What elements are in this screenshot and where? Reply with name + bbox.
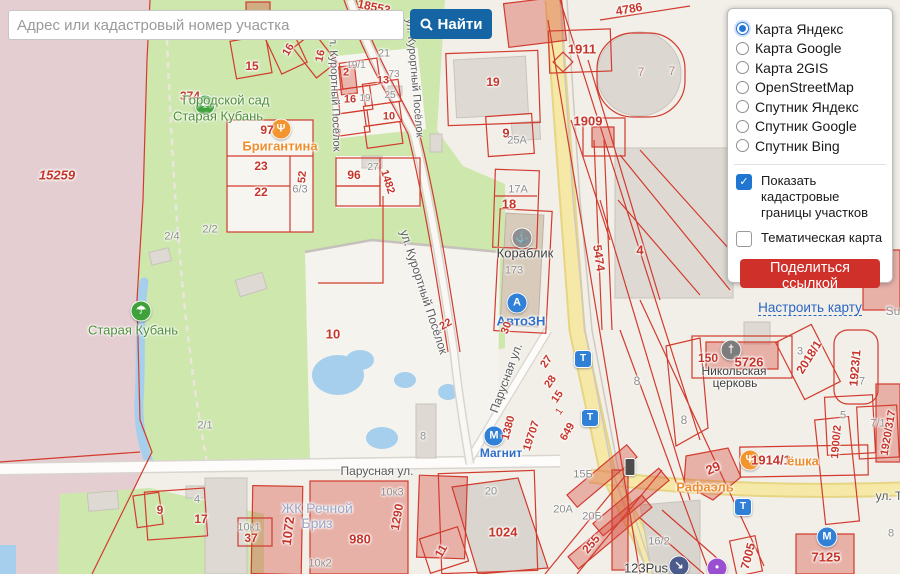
basemap-option-label: Спутник Bing <box>755 139 840 153</box>
basemap-option-4[interactable]: Спутник Яндекс <box>736 97 884 117</box>
overlay-option-0[interactable]: ✓Показать кадастровые границы участков <box>736 173 884 222</box>
search-input[interactable] <box>8 10 404 40</box>
basemap-option-label: Карта Google <box>755 41 842 55</box>
checkbox-icon <box>736 231 752 247</box>
basemap-option-label: Спутник Яндекс <box>755 100 859 114</box>
search-button-label: Найти <box>438 16 483 33</box>
basemap-option-label: Карта 2GIS <box>755 61 828 75</box>
configure-map-link[interactable]: Настроить карту <box>736 300 884 315</box>
radio-icon <box>736 139 749 152</box>
radio-icon <box>736 22 749 35</box>
traffic-light-icon[interactable] <box>625 458 636 476</box>
restaurant-icon[interactable]: Ψ <box>271 119 292 140</box>
overlay-option-1[interactable]: Тематическая карта <box>736 230 884 247</box>
layers-panel: Карта ЯндексКарта GoogleКарта 2GISOpenSt… <box>727 8 893 283</box>
tram-stop-icon[interactable]: Т <box>581 409 599 427</box>
panel-divider <box>734 164 886 165</box>
checkbox-icon: ✓ <box>736 174 752 190</box>
basemap-option-3[interactable]: OpenStreetMap <box>736 78 884 98</box>
radio-icon <box>736 81 749 94</box>
share-link-button[interactable]: Поделиться ссылкой <box>740 259 880 288</box>
radio-icon <box>736 100 749 113</box>
basemap-option-1[interactable]: Карта Google <box>736 39 884 59</box>
underpass-icon[interactable]: ↘ <box>669 556 690 574</box>
radio-icon <box>736 61 749 74</box>
search-icon <box>420 18 433 31</box>
basemap-option-label: Карта Яндекс <box>755 22 843 36</box>
map-application: ♣☂Ψ⚓АМ†ΨМТТТ↘• 185531616152119/121373161… <box>0 0 900 574</box>
poi-icon[interactable]: • <box>707 558 728 574</box>
tram-stop-icon[interactable]: Т <box>734 498 752 516</box>
basemap-option-0[interactable]: Карта Яндекс <box>736 19 884 39</box>
basemap-radio-group: Карта ЯндексКарта GoogleКарта 2GISOpenSt… <box>736 19 884 156</box>
basemap-option-6[interactable]: Спутник Bing <box>736 136 884 156</box>
radio-icon <box>736 120 749 133</box>
overlay-option-label: Показать кадастровые границы участков <box>761 173 884 222</box>
shop-korablik-icon[interactable]: ⚓ <box>512 228 533 249</box>
church-icon[interactable]: † <box>721 340 742 361</box>
store-magnit-icon[interactable]: М <box>484 426 505 447</box>
park-tree-icon[interactable]: ♣ <box>195 95 216 116</box>
basemap-option-2[interactable]: Карта 2GIS <box>736 58 884 78</box>
tram-stop-icon[interactable]: Т <box>574 350 592 368</box>
overlay-option-label: Тематическая карта <box>761 230 884 246</box>
basemap-option-label: OpenStreetMap <box>755 80 854 94</box>
search-button[interactable]: Найти <box>410 9 492 39</box>
beach-icon[interactable]: ☂ <box>131 301 152 322</box>
basemap-option-5[interactable]: Спутник Google <box>736 117 884 137</box>
store-magnit-icon[interactable]: М <box>817 527 838 548</box>
cafe-icon[interactable]: Ψ <box>740 450 761 471</box>
radio-icon <box>736 42 749 55</box>
basemap-option-label: Спутник Google <box>755 119 857 133</box>
overlay-options: ✓Показать кадастровые границы участковТе… <box>736 173 884 248</box>
car-service-icon[interactable]: А <box>507 293 528 314</box>
